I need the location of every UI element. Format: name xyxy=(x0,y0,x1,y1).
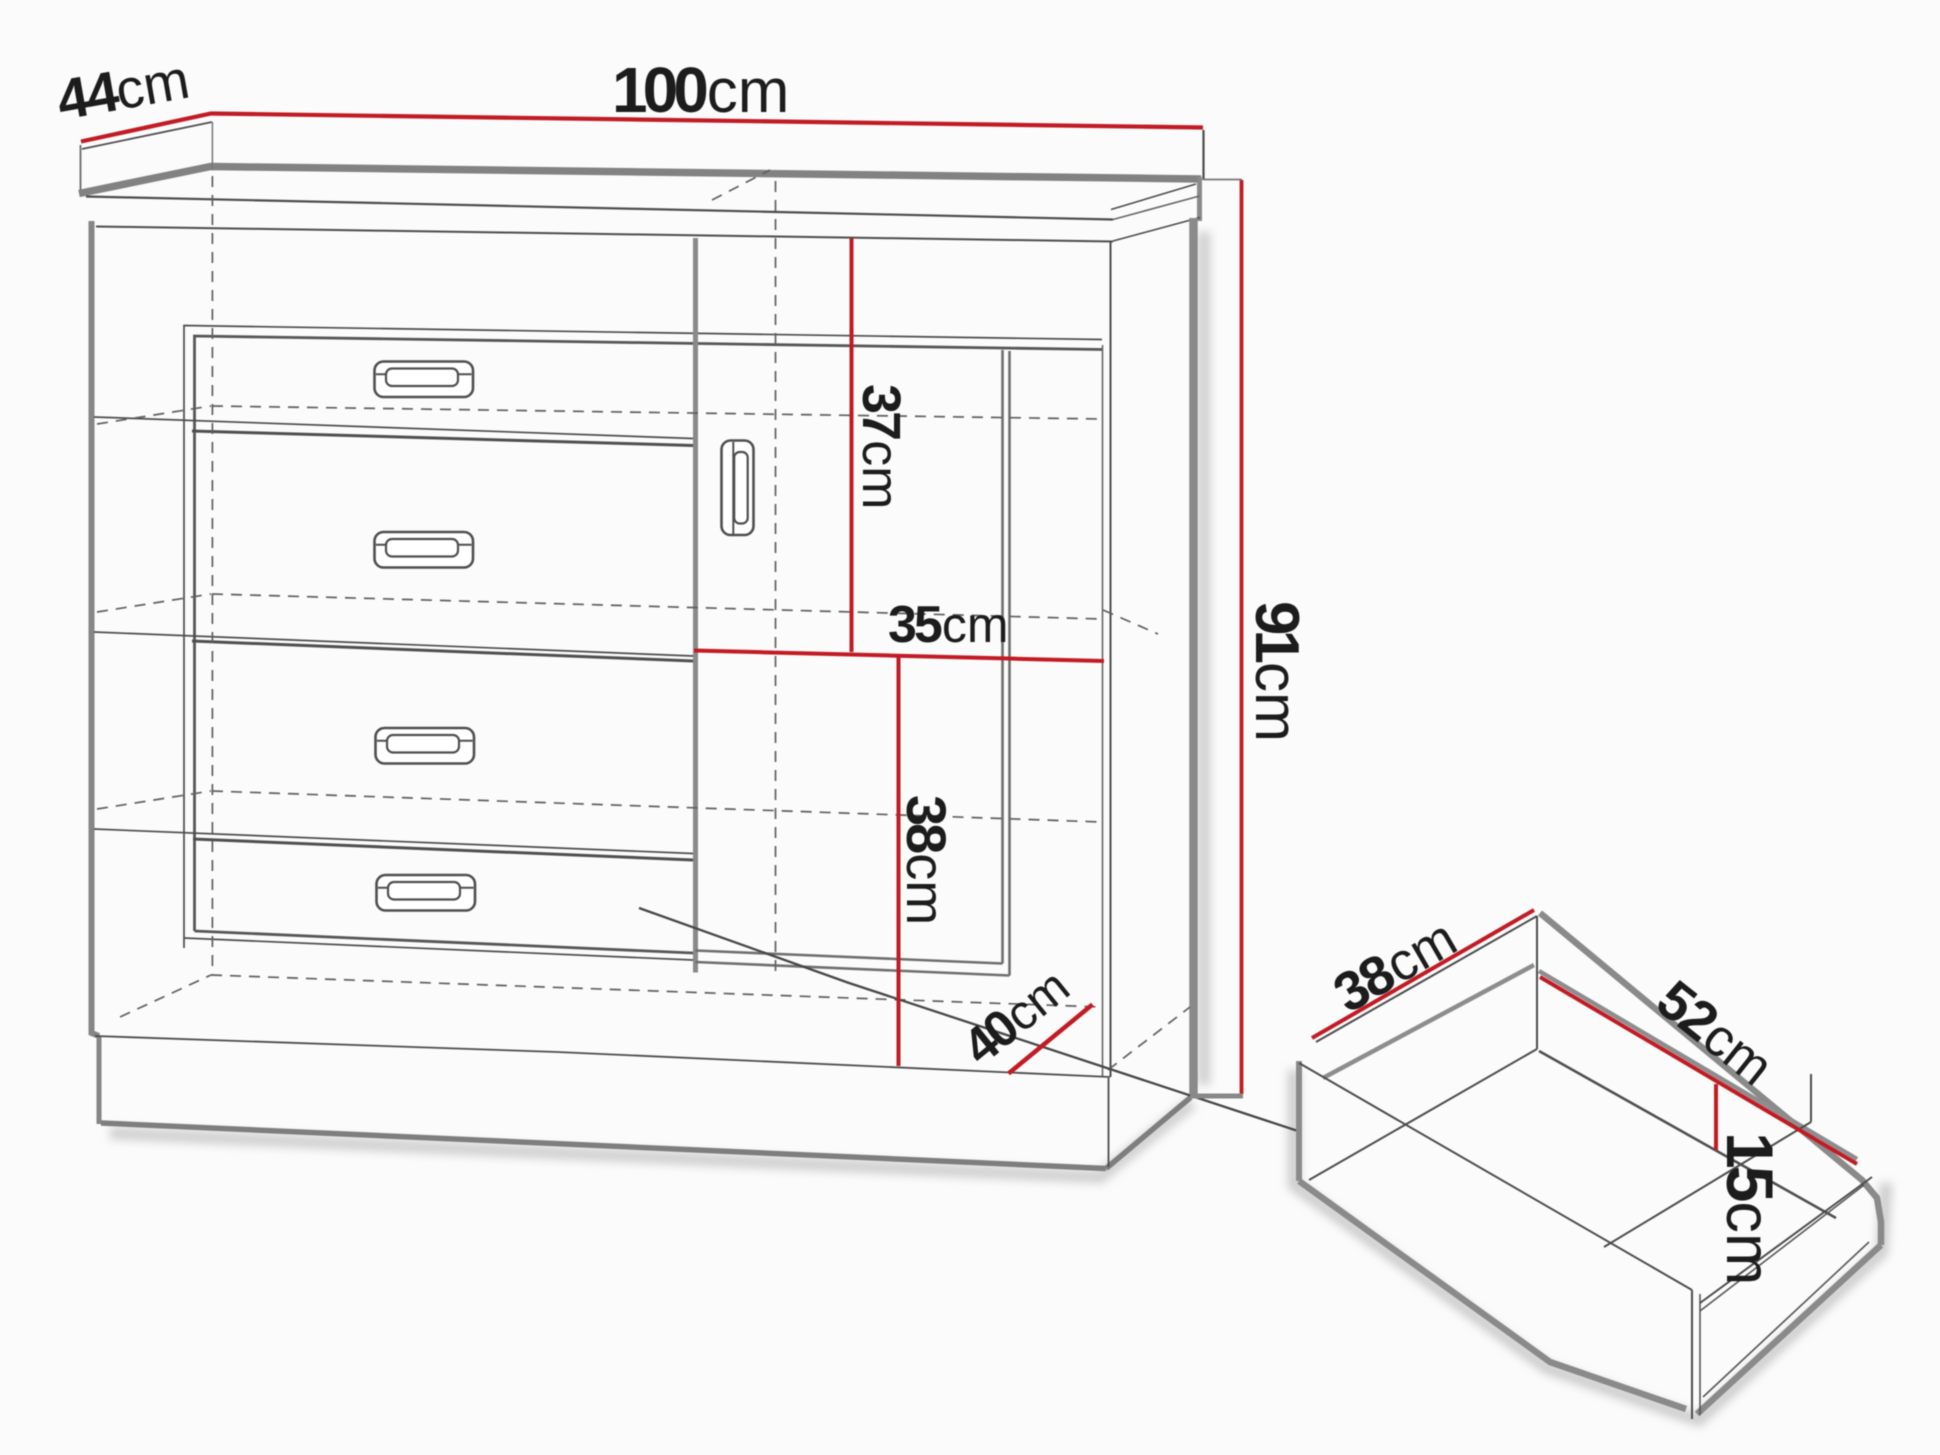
svg-text:35cm: 35cm xyxy=(888,596,1009,654)
svg-text:91cm: 91cm xyxy=(1242,601,1311,742)
svg-text:15cm: 15cm xyxy=(1713,1132,1787,1285)
svg-text:100cm: 100cm xyxy=(612,54,789,126)
svg-text:38cm: 38cm xyxy=(895,795,958,925)
svg-text:37cm: 37cm xyxy=(851,384,911,509)
svg-text:38cm: 38cm xyxy=(1323,906,1466,1025)
